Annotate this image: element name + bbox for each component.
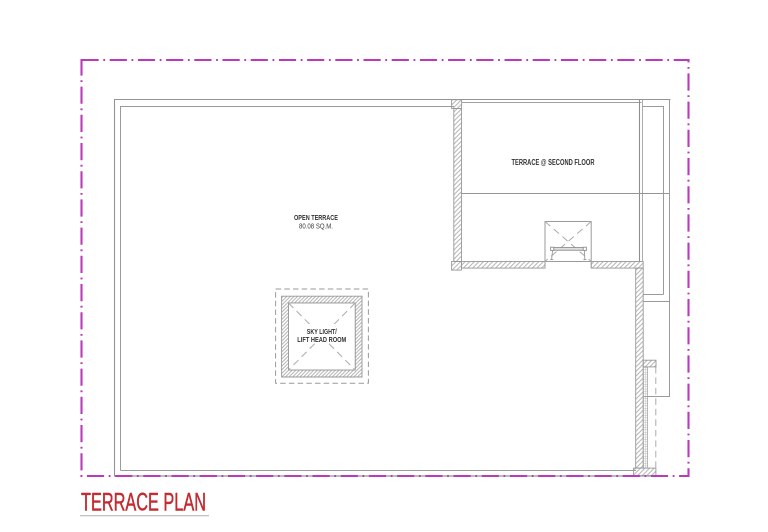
svg-text:TERRACE PLAN: TERRACE PLAN xyxy=(81,489,206,517)
svg-text:LIFT HEAD ROOM: LIFT HEAD ROOM xyxy=(297,335,346,344)
svg-text:TERRACE @ SECOND FLOOR: TERRACE @ SECOND FLOOR xyxy=(512,158,595,167)
svg-text:80.08 SQ.M.: 80.08 SQ.M. xyxy=(299,222,333,231)
